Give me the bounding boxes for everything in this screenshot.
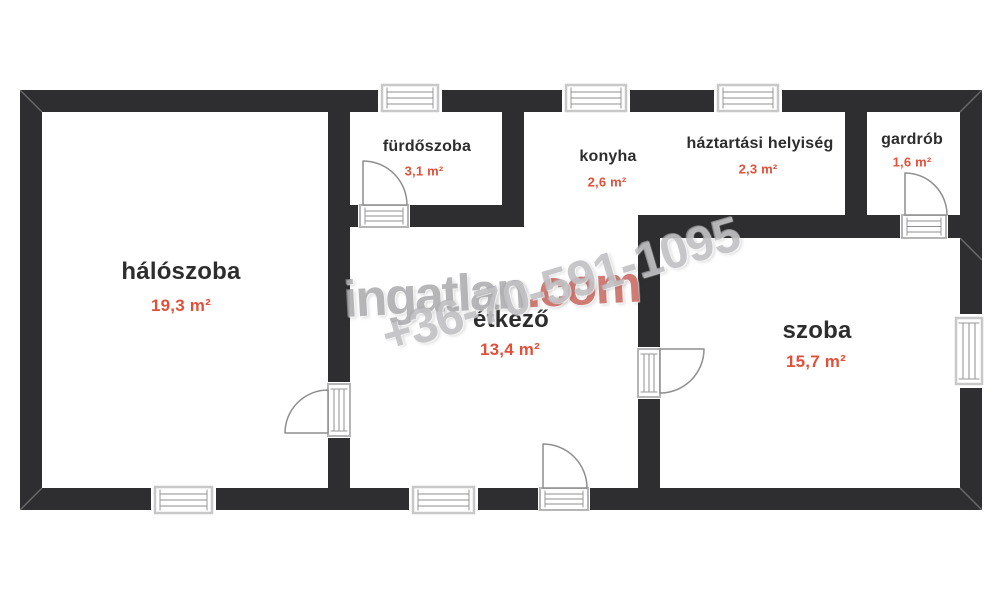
door-swing-room (660, 349, 704, 393)
room-area-gardrob: 1,6 m² (893, 155, 932, 170)
wall-bath-bottom-left (328, 205, 360, 227)
room-area-konyha: 2,6 m² (588, 175, 627, 190)
wall-top (20, 90, 982, 112)
window-symbol (956, 314, 982, 388)
room-name-szoba: szoba (782, 317, 851, 345)
room-area-haztartasi: 2,3 m² (739, 162, 778, 177)
window-symbol (151, 487, 216, 513)
wall-right (960, 90, 982, 510)
room-name-konyha: konyha (579, 148, 636, 166)
door-sill (538, 486, 590, 512)
door-thresholds (326, 203, 948, 512)
window-symbol (378, 85, 442, 112)
room-name-haztartasi: háztartási helyiség (687, 135, 834, 153)
room-name-haloszoba: hálószoba (121, 258, 240, 286)
wall-dining-room-lower (638, 397, 660, 488)
wall-bath-bottom-right (410, 205, 524, 227)
room-name-gardrob: gardrób (881, 131, 943, 149)
room-area-haloszoba: 19,3 m² (151, 296, 211, 316)
window-symbol (714, 85, 782, 112)
room-area-furdoszoba: 3,1 m² (405, 164, 444, 179)
wall-bedroom-right-upper (328, 112, 350, 384)
door-sill (636, 347, 662, 399)
window-symbol (562, 85, 630, 112)
wall-bedroom-right-lower (328, 436, 350, 488)
floorplan-drawing (0, 0, 1000, 600)
door-sill (358, 203, 410, 229)
room-area-szoba: 15,7 m² (786, 352, 846, 372)
wall-wardrobe-bottom (946, 215, 982, 238)
door-sill (900, 213, 948, 240)
room-area-etkezo: 13,4 m² (480, 340, 540, 360)
door-swing-entrance (543, 444, 587, 488)
door-swing-bathroom (363, 161, 407, 205)
wall-left (20, 90, 42, 510)
wall-utility-wardrobe (845, 112, 867, 238)
door-sill (326, 382, 352, 438)
room-name-etkezo: étkező (473, 306, 549, 334)
door-swing-wardrobe (905, 173, 947, 215)
window-symbol (409, 487, 478, 513)
room-name-furdoszoba: fürdőszoba (383, 138, 471, 156)
floorplan-canvas: hálószoba 19,3 m² fürdőszoba 3,1 m² kony… (0, 0, 1000, 600)
door-swing-bedroom (285, 390, 328, 433)
